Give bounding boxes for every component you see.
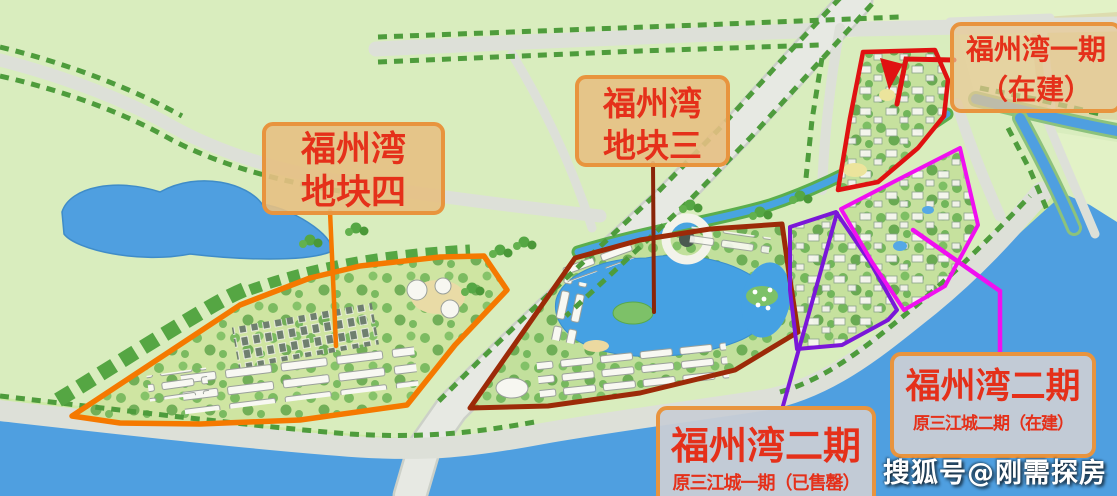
label-plot4: 福州湾 地块四 (262, 122, 445, 215)
label-phase2-construction: 福州湾二期 原三江城二期（在建） (890, 352, 1096, 458)
label-phase2-construction-subtitle: 原三江城二期（在建） (894, 415, 1092, 434)
label-plot3: 福州湾 地块三 (575, 75, 730, 167)
connector-plot3 (653, 163, 654, 312)
watermark: 搜狐号@刚需探房 (883, 451, 1107, 490)
label-phase2-sold: 福州湾二期 原三江城一期（已售罄） (656, 406, 876, 496)
label-plot3-line1: 福州湾 (579, 83, 726, 125)
label-plot4-line2: 地块四 (266, 172, 441, 215)
label-phase2-construction-title: 福州湾二期 (894, 369, 1092, 406)
planning-map: 福州湾 地块四 福州湾 地块三 福州湾一期 （在建） 福州湾二期 原三江城一期（… (0, 0, 1117, 496)
label-phase1-line1: 福州湾一期 (954, 30, 1117, 70)
label-phase1: 福州湾一期 （在建） (950, 22, 1117, 113)
label-phase2-sold-subtitle: 原三江城一期（已售罄） (660, 474, 872, 494)
label-plot3-line2: 地块三 (579, 125, 726, 167)
label-plot4-line1: 福州湾 (266, 129, 441, 172)
label-phase1-line2: （在建） (954, 70, 1117, 110)
label-phase2-sold-title: 福州湾二期 (660, 426, 872, 466)
